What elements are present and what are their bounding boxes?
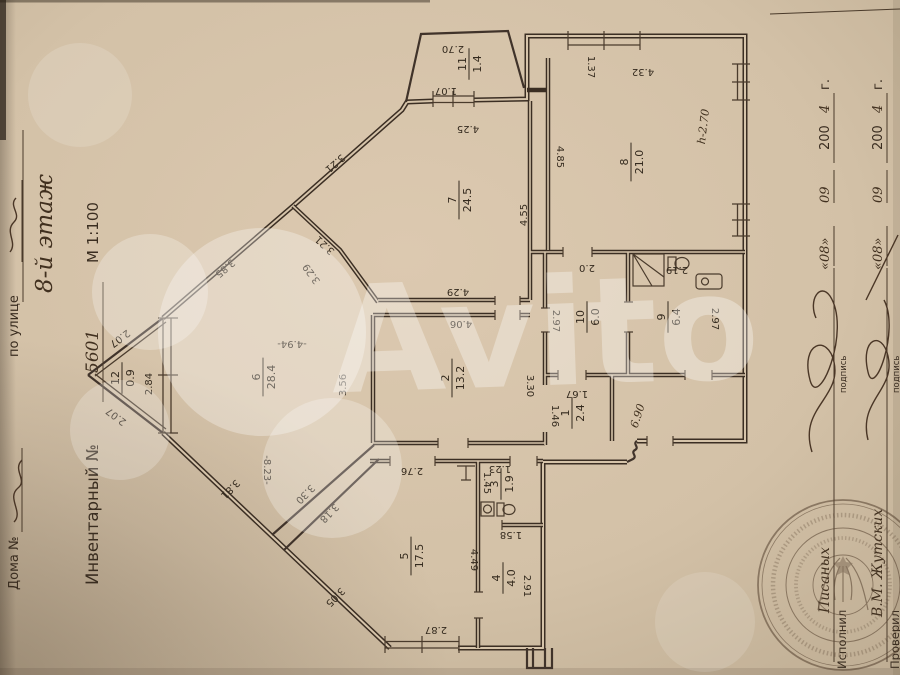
inventory-number: 5601	[83, 330, 103, 373]
watermark-circle	[655, 572, 755, 672]
date-suffix: г.	[818, 79, 833, 90]
room-area: 1.4	[471, 55, 484, 73]
dimension-label: 4.55	[519, 204, 530, 226]
street-label: по улице	[7, 295, 22, 357]
date-month: 09	[871, 186, 886, 203]
date-year: 200	[818, 125, 833, 150]
scale-label: М 1:100	[84, 202, 102, 263]
signature-caption: подпись	[892, 356, 900, 393]
dimension-label: 1.07	[435, 85, 457, 96]
watermark-circle	[28, 43, 132, 147]
date-day: «08»	[818, 238, 833, 270]
checked-name: В.М. Жутских	[870, 509, 886, 618]
dimension-label: 2.87	[425, 624, 447, 635]
house-label: Дома №	[7, 536, 22, 590]
dimension-label: 1.23	[489, 463, 511, 474]
room-area: 24.5	[461, 188, 474, 213]
room-area: 21.0	[633, 150, 646, 175]
dimension-label: 1.58	[500, 529, 522, 540]
watermark-circle	[70, 380, 170, 480]
room-number: 8	[618, 159, 631, 166]
room-number: 4	[490, 575, 503, 582]
scanned-floorplan-photo: 120.9628.4517.5724.5111.4821.0213.2106.0…	[0, 0, 900, 675]
room-number: 5	[398, 553, 411, 560]
date-year-hand: 4	[818, 105, 833, 114]
room-number: 7	[446, 197, 459, 204]
photo-edge-shadow	[0, 0, 6, 140]
floor-note: 8-й этаж	[32, 174, 58, 293]
date-month: 09	[818, 186, 833, 203]
dimension-label: 1.45	[481, 472, 492, 494]
dimension-label: 4.32	[632, 66, 654, 77]
watermark-circle	[92, 234, 208, 350]
watermark-text: Avito	[327, 241, 762, 428]
dimension-label: 4.49	[468, 549, 479, 571]
room-area: 17.5	[413, 544, 426, 569]
dimension-label: 2.76	[401, 465, 423, 476]
executed-label: Исполнил	[835, 610, 849, 669]
dimension-label: 1.37	[585, 56, 596, 78]
date-suffix: г.	[871, 79, 886, 90]
dimension-label: 2.70	[442, 43, 464, 54]
floorplan-sheet: 120.9628.4517.5724.5111.4821.0213.2106.0…	[0, 0, 900, 675]
room-area: 1.9	[503, 475, 516, 493]
date-year-hand: 4	[871, 105, 886, 114]
date-year: 200	[871, 125, 886, 150]
dimension-label: 4.25	[457, 123, 479, 134]
room-number: 11	[456, 57, 469, 71]
room-area: 4.0	[505, 569, 518, 587]
checked-label: Проверил	[888, 610, 900, 669]
dimension-label: 2.91	[521, 575, 532, 597]
dimension-label: 4.85	[554, 146, 565, 168]
signature-caption: подпись	[839, 356, 849, 393]
